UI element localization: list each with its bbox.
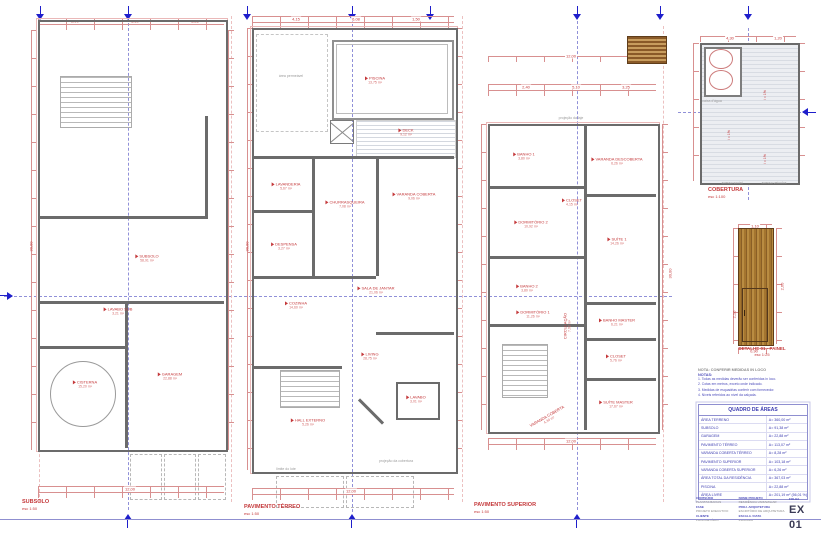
- shaft-x-box: [330, 120, 354, 144]
- note-item: 4. Níveis referidos ao nível da calçada.: [698, 393, 814, 398]
- door-handle: [744, 310, 745, 316]
- interior-wall: [38, 346, 125, 349]
- plan-title-superior: PAVIMENTO SUPERIOResc 1:50: [474, 502, 536, 514]
- level-flag-icon: [158, 372, 161, 376]
- section-marker-icon: [0, 291, 15, 301]
- plan-subsolo: 2,90 5,10 3,25 30,00 12,00 SUBSOLO58,91 …: [30, 16, 232, 508]
- room-label: HALL EXTERNO5,26 m²: [291, 417, 325, 426]
- table-row: PISCINAA= 22,88 m²: [699, 483, 807, 491]
- room-label: SUBSOLO58,91 m²: [135, 253, 158, 262]
- stairs: [60, 76, 132, 128]
- section-marker-icon: [572, 6, 582, 22]
- dimension-text: 6,08: [351, 17, 361, 22]
- roof-slope-label: i = 1%: [763, 154, 767, 164]
- dimension-text: 4,30: [725, 36, 735, 41]
- plan-cobertura: 4,30 1,20 caixa d'água i = 1% i = 1% i =…: [690, 33, 808, 195]
- room-label: DORMITÓRIO 210,92 m²: [514, 219, 547, 228]
- interior-wall: [38, 301, 224, 304]
- titleblock-field: NOME PROJETORESIDÊNCIA UNIFAMILIAR: [739, 497, 785, 505]
- interior-wall: [252, 156, 454, 159]
- room-label: PISCINA13,75 m²: [365, 75, 385, 84]
- interior-wall: [488, 186, 584, 189]
- water-tank-circle: [709, 70, 733, 90]
- detail-panel: 1,10 2,60 2,10 0,90: [730, 222, 782, 358]
- level-flag-icon: [325, 200, 328, 204]
- level-flag-icon: [599, 400, 602, 404]
- room-label: SALA DE JANTAR21,06 m²: [357, 285, 394, 294]
- section-marker-icon: [655, 6, 665, 22]
- room-label: CLOSET4,15 m²: [562, 197, 582, 206]
- room-label: BANHO 13,80 m²: [513, 151, 535, 160]
- level-flag-icon: [606, 354, 609, 358]
- dimension-text: 12,00: [124, 487, 136, 492]
- room-label: CHURRASQUEIRA7,08 m²: [325, 199, 364, 208]
- plan-superior: 12,00 2,40 5,10 3,25 projeção da laje 30…: [476, 26, 672, 508]
- permeable-area-dashed: [256, 34, 328, 132]
- dimension-line: [252, 494, 454, 500]
- room-label: LAVABO3,01 m²: [406, 394, 425, 403]
- interior-wall: [584, 302, 656, 305]
- level-flag-icon: [599, 318, 602, 322]
- room-label: LAVANDERIA5,67 m²: [272, 181, 301, 190]
- roof-slope-label: i = 1%: [763, 90, 767, 100]
- plan-title-cobertura: COBERTURAesc 1:100: [708, 187, 743, 199]
- level-flag-icon: [513, 152, 516, 156]
- dimension-text: 4,15: [291, 17, 301, 22]
- table-row: ÁREA TERRENOA= 360,00 m²: [699, 416, 807, 424]
- pool-inner-line: [336, 44, 448, 114]
- level-flag-icon: [516, 284, 519, 288]
- room-label: SUÍTE 114,26 m²: [607, 236, 626, 245]
- pergola-detail: [627, 36, 667, 64]
- table-row: PAVIMENTO SUPERIORA= 103,18 m²: [699, 458, 807, 466]
- level-flag-icon: [406, 395, 409, 399]
- areas-table-title: QUADRO DE ÁREAS: [699, 405, 807, 416]
- room-label: SUÍTE MASTER17,67 m²: [599, 399, 633, 408]
- annotation-water-tank: caixa d'água: [702, 99, 722, 103]
- level-flag-icon: [514, 220, 517, 224]
- dimension-line: [488, 444, 656, 450]
- dimension-text: 30,00: [29, 241, 34, 251]
- interior-wall: [584, 338, 656, 341]
- annotation-access-social: acesso social: [721, 181, 742, 185]
- panel-door: [742, 288, 768, 342]
- titleblock-field: PROJ. ARQUITETURAESCRITÓRIO DE ARQUITETU…: [739, 506, 785, 514]
- dimension-text: 12,00: [565, 54, 577, 59]
- annotation-access-vehicles: acesso veículos: [762, 181, 787, 185]
- areas-table: QUADRO DE ÁREAS ÁREA TERRENOA= 360,00 m²…: [698, 404, 808, 500]
- section-marker-icon: [572, 512, 582, 528]
- dimension-text: 1,50: [411, 17, 421, 22]
- sheet-number: EX 01: [789, 503, 818, 534]
- section-marker-icon: [743, 6, 753, 22]
- level-flag-icon: [285, 301, 288, 305]
- level-flag-icon: [591, 157, 594, 161]
- table-row: GARAGEMA= 22,88 m²: [699, 433, 807, 441]
- room-label: BANHO 23,80 m²: [516, 283, 538, 292]
- dimension-text: 1,20: [773, 36, 783, 41]
- level-flag-icon: [104, 307, 107, 311]
- stairs: [280, 370, 340, 408]
- table-row: VARANDA COBERTA SUPERIORA= 6,26 m²: [699, 466, 807, 474]
- drawing-sheet: 2,90 5,10 3,25 30,00 12,00 SUBSOLO58,91 …: [0, 0, 821, 535]
- plan-title-terreo: PAVIMENTO TÉRREOesc 1:50: [244, 504, 300, 516]
- table-row: ÁREA TOTAL DA RESIDÊNCIAA= 367,03 m²: [699, 475, 807, 483]
- section-marker-icon: [123, 512, 133, 528]
- dimension-text: 2,40: [521, 85, 531, 90]
- interior-wall: [584, 194, 656, 197]
- dimension-line: [228, 30, 234, 450]
- interior-wall: [488, 256, 584, 259]
- dimension-text: 30,00: [245, 241, 250, 251]
- level-flag-icon: [272, 182, 275, 186]
- interior-wall: [252, 366, 342, 369]
- interior-wall: [252, 210, 312, 213]
- room-label: CLOSET5,76 m²: [606, 353, 626, 362]
- stairs: [502, 344, 548, 398]
- table-row: VARANDA COBERTA TÉRREOA= 8,28 m²: [699, 450, 807, 458]
- interior-wall: [376, 156, 379, 276]
- interior-wall: [312, 156, 315, 276]
- room-label: DESPENSA3,27 m²: [271, 241, 297, 250]
- titleblock-field: FASEPROJETO EXECUTIVO: [696, 506, 735, 514]
- dimension-line: [488, 90, 656, 96]
- table-row: PAVIMENTO TÉRREOA= 113,07 m²: [699, 441, 807, 449]
- notes-block: NOTA: CONFERIR MEDIDAS IN LOCO NOTAS: 1.…: [698, 368, 814, 398]
- dimension-text: 2,60: [779, 283, 784, 291]
- level-flag-icon: [291, 418, 294, 422]
- roof-slope-label: i = 1%: [727, 130, 731, 140]
- room-label: DORMITÓRIO 111,26 m²: [516, 309, 549, 318]
- interior-wall: [125, 301, 128, 448]
- level-flag-icon: [73, 380, 76, 384]
- interior-wall: [252, 276, 376, 279]
- room-label: VARANDA COBERTA9,06 m²: [393, 191, 436, 200]
- dimension-text: 2,10: [731, 311, 736, 319]
- interior-wall: [205, 116, 208, 219]
- level-flag-icon: [393, 192, 396, 196]
- dimension-line: [38, 492, 224, 498]
- dimension-text: 5,10: [571, 85, 581, 90]
- plan-terreo: 4,15 6,08 1,50 30,00 área permeável proj…: [246, 14, 464, 510]
- level-flag-icon: [271, 242, 274, 246]
- interior-wall: [584, 378, 656, 381]
- title-block: CONTEÚDOPLANTAS BAIXAS FASEPROJETO EXECU…: [696, 497, 818, 531]
- notes-heading: NOTA: CONFERIR MEDIDAS IN LOCO: [698, 368, 814, 372]
- level-flag-icon: [516, 310, 519, 314]
- level-flag-icon: [562, 198, 565, 202]
- room-label: LIVING28,75 m²: [361, 351, 378, 360]
- annotation-slab-projection: projeção da laje: [559, 116, 584, 120]
- room-label: CIRCULAÇÃO7,92 m²: [562, 313, 571, 339]
- room-label: LAVABO SUB3,21 m²: [104, 306, 133, 315]
- interior-wall: [584, 124, 587, 430]
- room-label: GARAGEM22,88 m²: [158, 371, 182, 380]
- dimension-text: 12,00: [565, 439, 577, 444]
- dimension-text: 12,00: [345, 489, 357, 494]
- table-row: SUBSOLOA= 91,38 m²: [699, 424, 807, 432]
- deck-boards: [356, 120, 456, 158]
- dimension-text: 30,00: [668, 268, 673, 278]
- annotation-permeable: área permeável: [279, 74, 303, 78]
- room-label: COZINHA14,60 m²: [285, 300, 307, 309]
- section-marker-icon: [347, 512, 357, 528]
- room-label: BANHO MASTER6,21 m²: [599, 317, 635, 326]
- titleblock-field: CONTEÚDOPLANTAS BAIXAS: [696, 497, 735, 505]
- room-label: CISTERNA15,20 m²: [73, 379, 97, 388]
- dimension-text: 3,25: [621, 85, 631, 90]
- dimension-line: [693, 43, 699, 181]
- room-label: DECK9,12 m²: [398, 127, 413, 136]
- water-tank-circle: [709, 49, 733, 69]
- level-flag-icon: [135, 254, 138, 258]
- detail-title: DETALHE 01 - PAINELesc 1:25: [732, 346, 792, 357]
- room-label: VARANDA DESCOBERTA6,26 m²: [591, 156, 642, 165]
- interior-wall: [38, 216, 208, 219]
- annotation-lot-limit: limite do lote: [276, 467, 296, 471]
- level-flag-icon: [357, 286, 360, 290]
- sheet-frame-line: [0, 519, 821, 520]
- cistern-circle: [50, 361, 116, 427]
- plan-title-subsolo: SUBSOLOesc 1:50: [22, 499, 49, 511]
- sheet-label: FOLHA: [789, 497, 818, 501]
- interior-wall: [376, 332, 454, 335]
- annotation-projection: projeção da cobertura: [379, 459, 413, 463]
